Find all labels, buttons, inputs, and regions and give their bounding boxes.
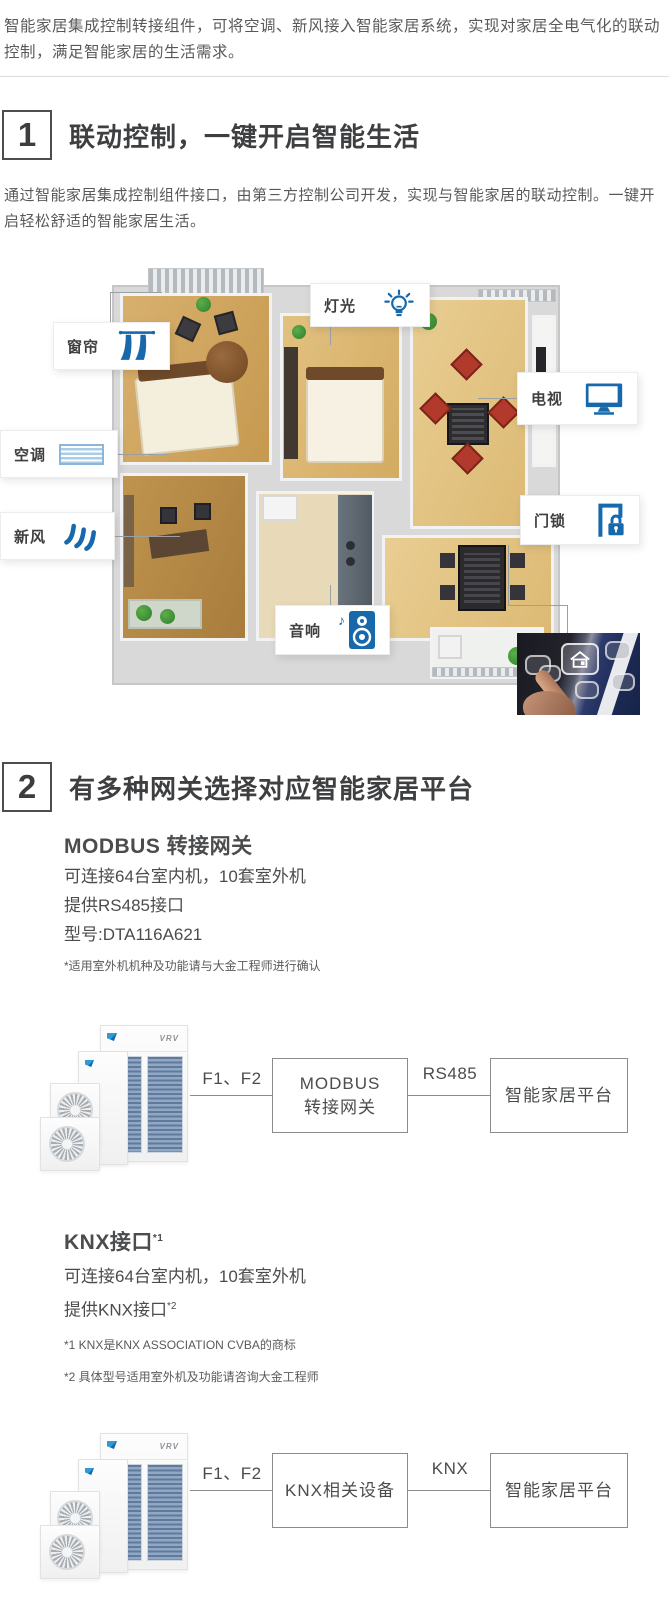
wire-line [190, 1095, 272, 1096]
bed-headboard [306, 367, 384, 380]
outdoor-unit-cluster: VRV [40, 1425, 190, 1580]
daikin-logo [107, 1441, 117, 1449]
outdoor-unit-small [40, 1525, 100, 1579]
knx-spec-2-sup: *2 [167, 1301, 176, 1312]
fresh-air-icon [61, 519, 101, 553]
platform-box: 智能家居平台 [490, 1058, 628, 1133]
speaker-icon: ♪ [338, 610, 376, 650]
app-tile [605, 641, 631, 660]
balcony-railing-top [148, 268, 264, 294]
plant [292, 325, 306, 339]
vrv-logo: VRV [160, 1442, 179, 1451]
round-table [206, 341, 248, 383]
modbus-spec-3: 型号:DTA116A621 [64, 920, 306, 949]
plant [196, 297, 211, 312]
label-door-lock: 门锁 [520, 495, 640, 545]
platform-label: 智能家居平台 [505, 1479, 613, 1503]
plant [136, 605, 152, 621]
wire-label: F1、F2 [192, 1064, 272, 1089]
fan-grille [49, 1534, 85, 1570]
bus-line [408, 1095, 490, 1096]
section1-description: 通过智能家居集成控制组件接口，由第三方控制公司开发，实现与智能家居的联动控制。一… [4, 183, 661, 235]
tv-label: 电视 [531, 388, 563, 409]
section2-number-badge: 2 [2, 762, 52, 812]
connector-line [508, 605, 567, 606]
product-page: 智能家居集成控制转接组件，可将空调、新风接入智能家居系统，实现对家居全电气化的联… [0, 0, 669, 1600]
light-bulb-icon [382, 288, 416, 322]
gateway-name-line1: MODBUS [300, 1072, 381, 1096]
platform-label: 智能家居平台 [505, 1084, 613, 1108]
smart-home-floorplan: 灯光 窗帘 [0, 255, 669, 725]
vrv-logo: VRV [160, 1034, 179, 1043]
knx-heading: KNX接口*1 [64, 1226, 163, 1256]
connector-line [110, 292, 162, 293]
section2-header: 2 有多种网关选择对应智能家居平台 [2, 762, 474, 812]
knx-spec-2: 提供KNX接口*2 [64, 1292, 306, 1326]
modbus-heading: MODBUS 转接网关 [64, 830, 253, 860]
connector-line [567, 605, 568, 633]
bus-line [408, 1490, 490, 1491]
knx-specs: 可连接64台室内机，10套室外机 提供KNX接口*2 [64, 1262, 306, 1326]
door-lock-label: 门锁 [534, 510, 566, 531]
daikin-logo [107, 1033, 117, 1041]
app-tile [611, 673, 635, 691]
knx-spec-1: 可连接64台室内机，10套室外机 [64, 1262, 306, 1292]
connector-line [110, 292, 111, 322]
knx-spec-2-text: 提供KNX接口 [64, 1301, 167, 1320]
bed [306, 377, 384, 463]
wire-line [190, 1490, 272, 1491]
knx-device-box: KNX相关设备 [272, 1453, 408, 1528]
smart-control-photo [517, 633, 640, 715]
chair [510, 553, 525, 568]
curtain-icon [118, 328, 156, 364]
light-label: 灯光 [324, 295, 356, 316]
modbus-footnote: *适用室外机机种及功能请与大金工程师进行确认 [64, 957, 321, 974]
label-speaker: 音响 ♪ [275, 605, 390, 655]
ac-label: 空调 [14, 444, 46, 465]
platform-box: 智能家居平台 [490, 1453, 628, 1528]
section1-number-badge: 1 [2, 110, 52, 160]
connector-line [115, 536, 180, 537]
outdoor-unit-cluster: VRV [40, 1017, 190, 1172]
knx-footnote-1: *1 KNX是KNX ASSOCIATION CVBA的商标 [64, 1336, 296, 1353]
curtain-label: 窗帘 [67, 336, 99, 357]
chair [160, 507, 177, 524]
daikin-logo [85, 1060, 94, 1067]
gateway-name-line2: 转接网关 [304, 1096, 376, 1120]
connector-line [330, 585, 331, 605]
outdoor-unit-small [40, 1117, 100, 1171]
music-note-icon: ♪ [338, 612, 346, 628]
table-grid [452, 408, 484, 440]
knx-device-label: KNX相关设备 [285, 1479, 395, 1503]
modbus-specs: 可连接64台室内机，10套室外机 提供RS485接口 型号:DTA116A621 [64, 862, 306, 949]
section-divider [0, 76, 669, 77]
stove-burner [346, 541, 355, 550]
connector-line [330, 327, 331, 345]
fan-grille [49, 1126, 85, 1162]
plant [160, 609, 175, 624]
knx-heading-sup: *1 [153, 1233, 163, 1244]
knx-footnote-2: *2 具体型号适用室外机及功能请咨询大金工程师 [64, 1368, 319, 1385]
label-tv: 电视 [517, 372, 638, 425]
door-lock-icon [594, 500, 626, 540]
modbus-spec-1: 可连接64台室内机，10套室外机 [64, 862, 306, 891]
label-curtain: 窗帘 [53, 322, 170, 370]
knx-diagram: VRV F1、F2 KNX相关设备 KNX 智能家居平台 [0, 1407, 669, 1582]
connector-line [478, 398, 517, 399]
chair [440, 553, 455, 568]
label-fresh-air: 新风 [0, 512, 115, 560]
wardrobe [284, 347, 298, 459]
speaker-label: 音响 [289, 620, 321, 641]
washing-machine [438, 635, 462, 659]
chair [510, 585, 525, 600]
label-ac: 空调 [0, 430, 118, 478]
ac-vent-icon [59, 444, 104, 465]
tv-icon [584, 381, 624, 417]
bookshelf [124, 495, 134, 587]
modbus-gateway-box: MODBUS 转接网关 [272, 1058, 408, 1133]
home-button-tile [561, 643, 599, 675]
stove-burner [346, 557, 355, 566]
app-tile [575, 681, 599, 699]
section1-title: 联动控制，一键开启智能生活 [69, 117, 420, 154]
house-icon [569, 650, 591, 669]
unit-grille [147, 1464, 183, 1561]
chair [440, 585, 455, 600]
section1-header: 1 联动控制，一键开启智能生活 [2, 110, 420, 160]
bus-label: KNX [410, 1459, 490, 1479]
knx-heading-text: KNX接口 [64, 1231, 153, 1254]
chair [194, 503, 211, 520]
modbus-spec-2: 提供RS485接口 [64, 891, 306, 920]
hand [523, 691, 575, 715]
section2-title: 有多种网关选择对应智能家居平台 [69, 769, 474, 806]
connector-line [118, 454, 168, 455]
label-light: 灯光 [310, 283, 430, 327]
fridge [262, 495, 298, 521]
dining-table-top [464, 553, 500, 603]
intro-paragraph: 智能家居集成控制转接组件，可将空调、新风接入智能家居系统，实现对家居全电气化的联… [4, 14, 665, 66]
fresh-air-label: 新风 [14, 526, 46, 547]
daikin-logo [85, 1468, 94, 1475]
connector-line [508, 545, 509, 605]
modbus-diagram: VRV F1、F2 MODBUS 转接网关 RS485 智能家居平台 [0, 1012, 669, 1177]
wire-label: F1、F2 [192, 1459, 272, 1484]
bus-label: RS485 [410, 1064, 490, 1084]
unit-grille [147, 1056, 183, 1153]
